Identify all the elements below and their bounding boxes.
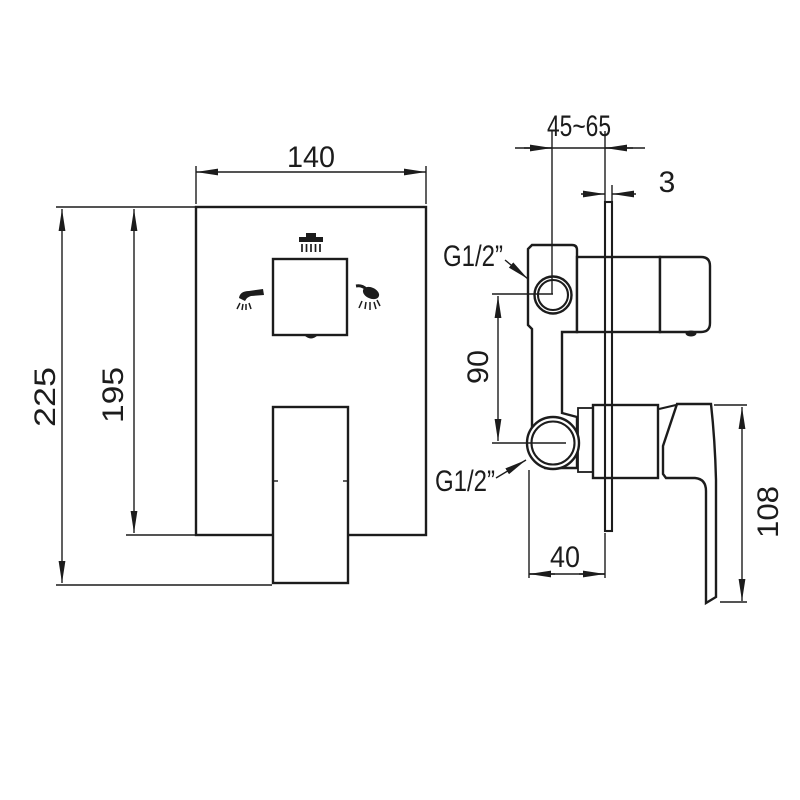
handle-neck-line [659, 405, 676, 409]
dim-label-140: 140 [287, 141, 335, 174]
dim-label-45-65: 45~65 [547, 110, 611, 143]
dim-label-225: 225 [29, 367, 62, 427]
dim-label-3: 3 [659, 166, 676, 199]
knob-cap-detail [686, 331, 697, 337]
dim-label-40: 40 [550, 541, 580, 574]
dim-label-195: 195 [97, 367, 130, 423]
dim-label-90: 90 [462, 350, 495, 384]
front-handle [273, 407, 348, 583]
drawing-canvas: 140 225 195 [0, 0, 800, 800]
technical-drawing: 140 225 195 [0, 0, 800, 800]
dim-label-108: 108 [752, 486, 785, 538]
dim-body-to-plate-40: 40 [529, 470, 605, 578]
dim-width-140: 140 [196, 141, 426, 204]
wall-plate-side [605, 202, 612, 531]
diverter-button [273, 259, 347, 335]
front-view: 140 225 195 [29, 141, 426, 585]
g12-label-top: G1/2” [443, 240, 503, 273]
handle-base [593, 405, 658, 478]
port-connector [578, 408, 593, 472]
knob-cap [660, 257, 710, 332]
connection-label-bottom: G1/2” [435, 460, 526, 498]
upper-port-outer [535, 277, 572, 314]
g12-leader-bottom [496, 460, 526, 478]
dim-plate-height-195: 195 [97, 209, 195, 535]
knob-stem [577, 257, 660, 332]
side-view: 45~65 3 90 40 [435, 110, 785, 603]
g12-label-bottom: G1/2” [435, 465, 495, 498]
dim-plate-thickness-3: 3 [581, 166, 675, 201]
connection-label-top: G1/2” [443, 240, 528, 279]
dim-handle-height-108: 108 [714, 405, 785, 602]
side-handle [663, 404, 716, 603]
g12-leader-top [505, 260, 528, 279]
